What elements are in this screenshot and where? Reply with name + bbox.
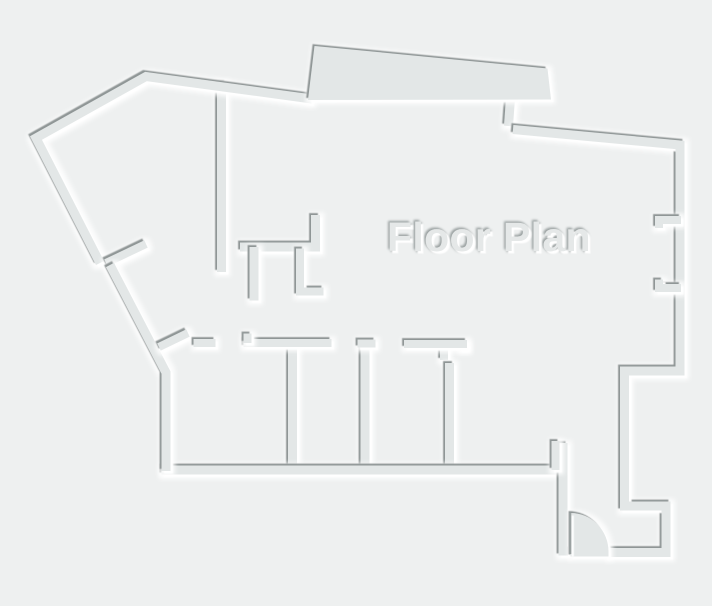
svg-text:Floor Plan: Floor Plan [387,214,591,260]
